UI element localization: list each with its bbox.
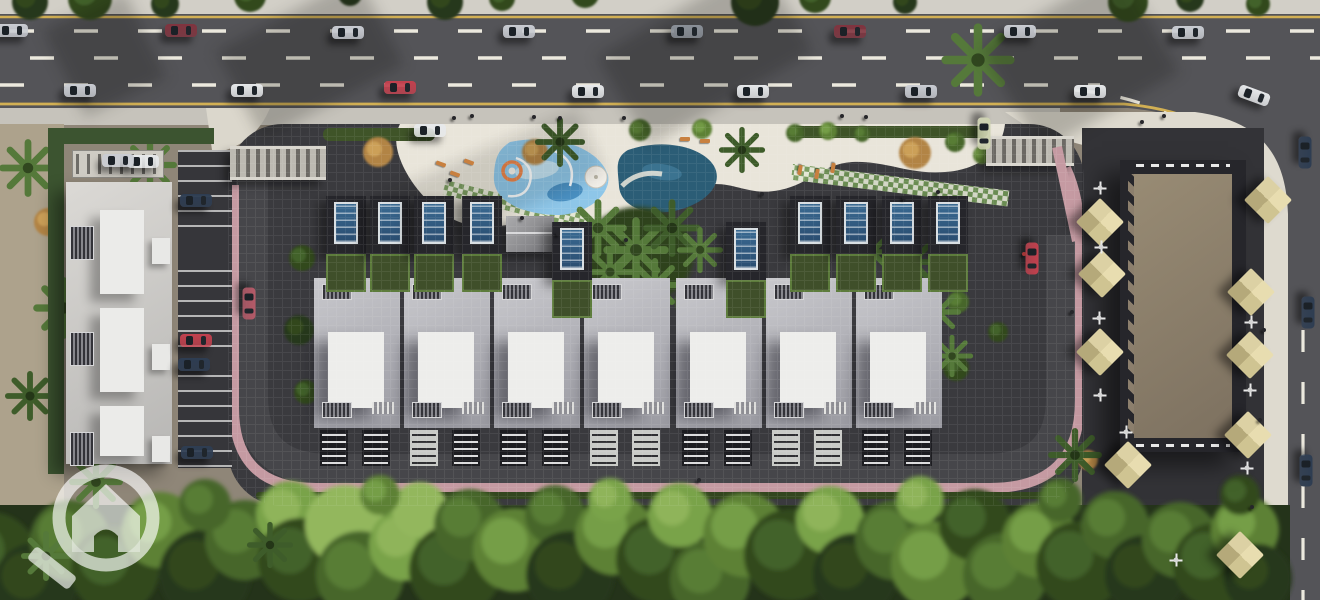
palm-tree <box>126 141 174 189</box>
tree-highlight <box>292 248 306 262</box>
bottom-sidewalk <box>0 108 1060 125</box>
tree-highlight <box>1042 483 1066 507</box>
palm-tree <box>588 250 632 294</box>
tree-highlight <box>364 480 386 502</box>
tree-highlight <box>990 324 1001 335</box>
tree-highlight <box>946 497 986 537</box>
tree-highlight <box>631 122 643 134</box>
tree-highlight <box>313 494 357 538</box>
tree-highlight <box>947 134 958 145</box>
palm-tree <box>631 261 679 309</box>
aerial-render-scene <box>0 0 1320 600</box>
watermark-logo <box>14 438 204 600</box>
tree-highlight <box>1088 499 1125 536</box>
tree-highlight <box>753 520 804 571</box>
palm-tree <box>946 28 1011 93</box>
palm-tree <box>647 203 698 254</box>
palm-tree <box>538 120 582 164</box>
house-icon <box>72 484 140 552</box>
tree-highlight <box>592 483 616 507</box>
pool-parasol <box>585 166 607 188</box>
palm-tree <box>933 337 970 374</box>
tree-highlight <box>975 148 985 158</box>
tree-highlight <box>821 124 831 134</box>
autumn-tree-highlight <box>367 142 382 157</box>
tree-highlight <box>287 318 304 335</box>
tree-highlight <box>441 497 481 537</box>
palm-tree <box>890 240 934 284</box>
palm-tree <box>1051 431 1099 479</box>
tree-highlight <box>694 121 705 132</box>
palm-tree <box>722 130 763 171</box>
tree-highlight <box>535 541 583 589</box>
palm-tree <box>918 292 959 333</box>
tree-highlight <box>1231 552 1268 589</box>
tree-highlight <box>481 518 527 564</box>
tree-highlight <box>398 488 429 519</box>
palm-tree <box>3 143 54 194</box>
autumn-tree-highlight <box>903 142 919 158</box>
tree-highlight <box>803 494 840 531</box>
tree-highlight <box>678 292 692 306</box>
tree-highlight <box>1224 480 1246 502</box>
tree-highlight <box>856 128 865 137</box>
tree-highlight <box>654 490 689 525</box>
tree-highlight <box>681 352 693 364</box>
tree-highlight <box>296 383 309 396</box>
autumn-tree-highlight <box>38 212 52 226</box>
palm-tree <box>250 525 291 566</box>
palm-tree <box>8 374 52 418</box>
tree-highlight <box>900 531 948 579</box>
autumn-tree-highlight <box>94 248 109 263</box>
tree-highlight <box>531 492 564 525</box>
palm-tree <box>852 232 893 273</box>
tree-highlight <box>901 482 927 508</box>
tree-highlight <box>788 126 798 136</box>
autumn-tree-highlight <box>525 143 538 156</box>
palm-tree <box>680 230 721 271</box>
palm-tree <box>37 281 91 335</box>
tree-highlight <box>325 541 373 589</box>
